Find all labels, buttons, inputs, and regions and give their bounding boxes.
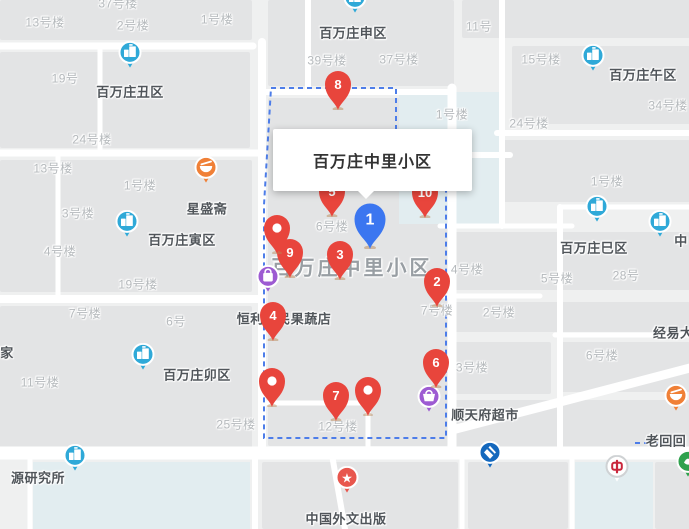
pin-3[interactable]: 3 bbox=[326, 240, 354, 280]
svg-text:1: 1 bbox=[366, 212, 375, 229]
svg-text:8: 8 bbox=[334, 77, 341, 92]
svg-text:7: 7 bbox=[332, 388, 339, 403]
info-card[interactable]: 百万庄中里小区 bbox=[273, 129, 472, 191]
poi-research-institute-icon[interactable] bbox=[62, 444, 88, 478]
pin-8[interactable]: 8 bbox=[324, 70, 352, 110]
poi-baiwanzhuang-siqu-icon[interactable] bbox=[584, 195, 610, 229]
pin-2[interactable]: 2 bbox=[423, 267, 451, 307]
poi-baiwanzhuang-shenqu-icon[interactable] bbox=[342, 0, 368, 20]
poi-baiwanzhuang-maoqu-icon[interactable] bbox=[130, 343, 156, 377]
poi-foreign-press-icon[interactable]: ★ bbox=[334, 466, 360, 500]
poi-partial-right-icon[interactable] bbox=[647, 210, 673, 244]
svg-text:2: 2 bbox=[433, 274, 440, 289]
poi-shuntianfu-market-icon[interactable] bbox=[416, 385, 442, 419]
poi-bank-ccb-icon[interactable] bbox=[477, 441, 503, 475]
map-canvas[interactable]: 百万庄中里小区 37号楼13号楼2号楼1号楼19号24号楼13号楼1号楼3号楼4… bbox=[0, 0, 689, 529]
pin-1[interactable]: 1 bbox=[353, 201, 387, 249]
pin-6[interactable]: 6 bbox=[422, 348, 450, 388]
svg-text:★: ★ bbox=[341, 471, 353, 486]
pin-dot-b[interactable] bbox=[258, 367, 286, 407]
poi-bank-boc-icon[interactable] bbox=[604, 455, 630, 489]
info-card-title: 百万庄中里小区 bbox=[313, 148, 432, 172]
poi-baiwanzhuang-chouqu-icon[interactable] bbox=[117, 41, 143, 75]
poi-bank-green-icon[interactable] bbox=[675, 450, 689, 484]
svg-text:6: 6 bbox=[432, 355, 439, 370]
poi-baiwanzhuang-wuqu-icon[interactable] bbox=[580, 44, 606, 78]
pin-dot-a[interactable] bbox=[263, 214, 291, 254]
pin-7[interactable]: 7 bbox=[322, 381, 350, 421]
pin-dot-c[interactable] bbox=[354, 376, 382, 416]
svg-text:4: 4 bbox=[269, 308, 277, 323]
poi-baiwanzhuang-yinqu-icon[interactable] bbox=[114, 210, 140, 244]
poi-laohuihui-icon[interactable] bbox=[663, 384, 689, 418]
pin-4[interactable]: 4 bbox=[259, 301, 287, 341]
svg-text:3: 3 bbox=[336, 247, 343, 262]
poi-xingshengzhai-icon[interactable] bbox=[193, 156, 219, 190]
